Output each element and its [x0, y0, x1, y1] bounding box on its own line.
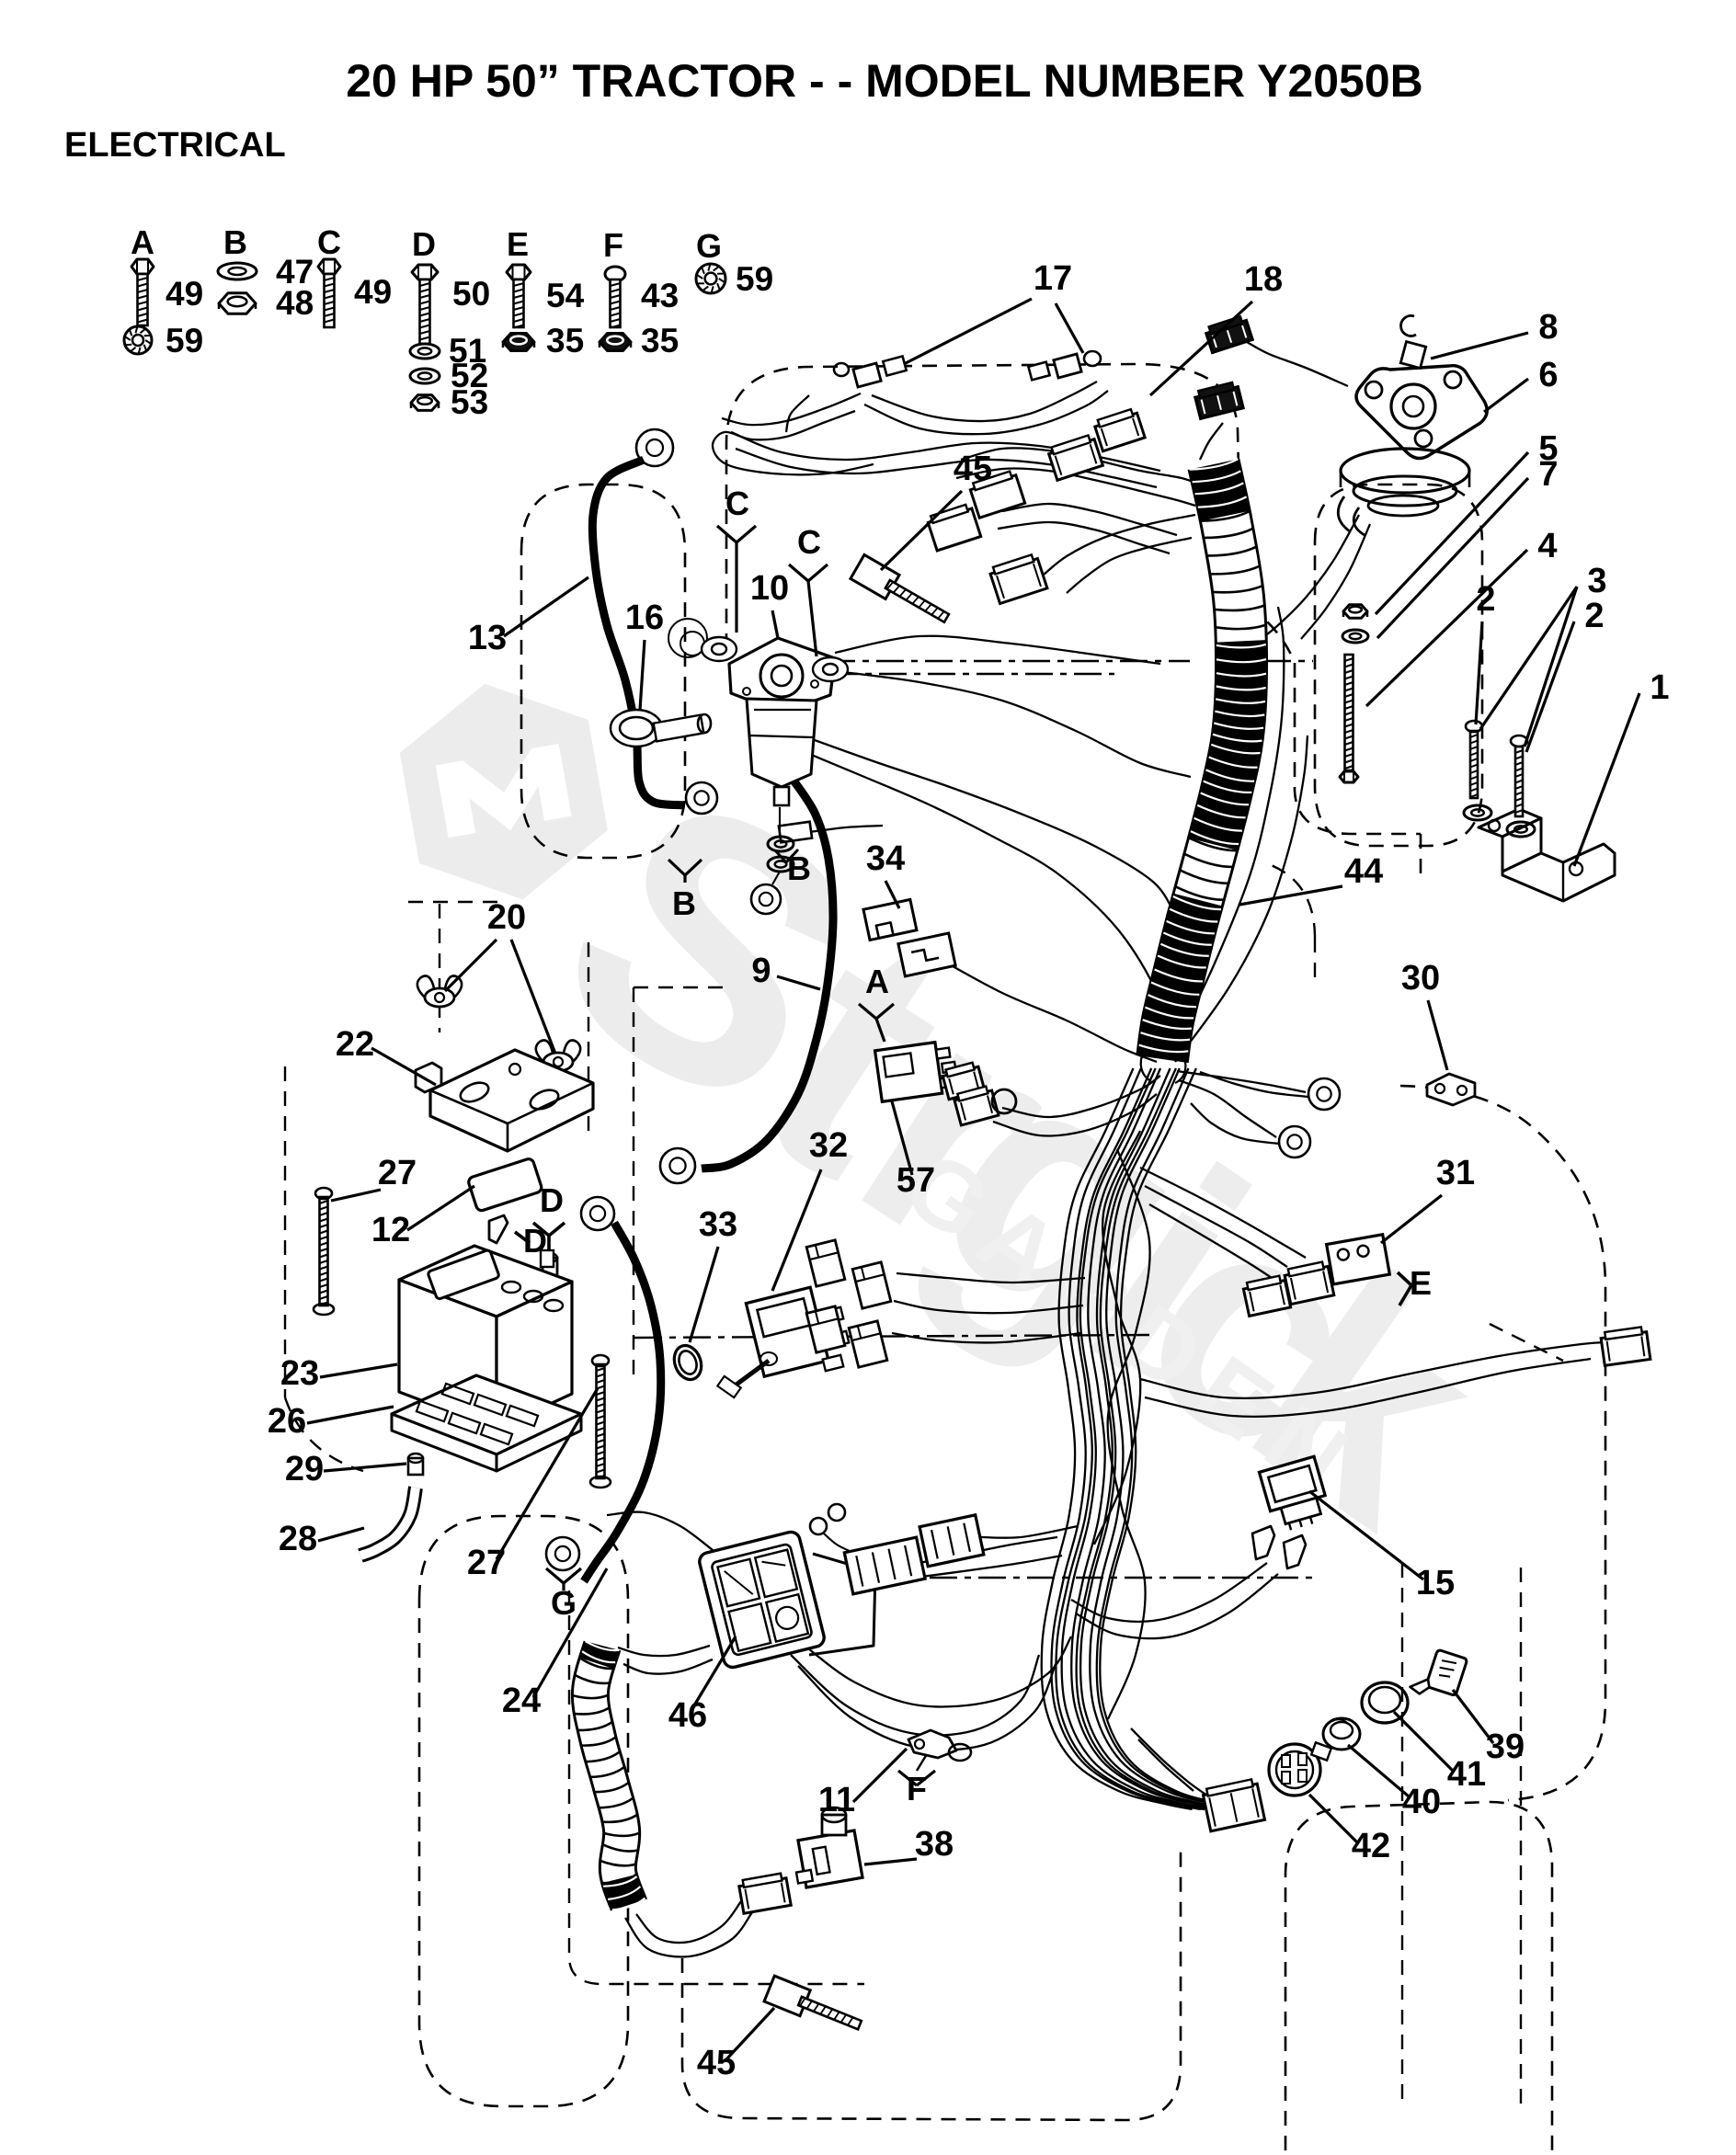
svg-text:35: 35 [546, 322, 584, 359]
svg-text:53: 53 [451, 383, 488, 421]
svg-text:8: 8 [1538, 308, 1558, 347]
svg-text:15: 15 [1416, 1564, 1455, 1602]
svg-text:39: 39 [1486, 1727, 1525, 1766]
svg-text:22: 22 [336, 1025, 374, 1064]
svg-text:6: 6 [1538, 356, 1558, 394]
svg-text:10: 10 [750, 569, 789, 608]
svg-text:E: E [1410, 1264, 1432, 1302]
svg-text:57: 57 [897, 1161, 935, 1200]
svg-text:4: 4 [1537, 527, 1557, 565]
svg-text:38: 38 [915, 1825, 954, 1864]
svg-text:32: 32 [809, 1126, 848, 1165]
svg-text:18: 18 [1244, 260, 1283, 299]
svg-text:30: 30 [1401, 959, 1440, 998]
svg-text:27: 27 [467, 1544, 506, 1582]
svg-text:B: B [223, 223, 247, 261]
svg-text:46: 46 [668, 1696, 707, 1735]
svg-text:24: 24 [502, 1682, 541, 1720]
svg-text:28: 28 [279, 1520, 317, 1558]
svg-text:50: 50 [452, 275, 490, 313]
svg-text:31: 31 [1436, 1154, 1475, 1192]
svg-text:2: 2 [1584, 597, 1604, 635]
svg-text:48: 48 [276, 284, 314, 322]
svg-text:20 HP 50” TRACTOR - - MODEL: 20 HP 50” TRACTOR - - MODEL NUMBER Y2050… [346, 55, 1423, 107]
svg-text:43: 43 [641, 277, 679, 314]
svg-text:A: A [865, 963, 889, 1000]
svg-text:45: 45 [697, 2044, 736, 2082]
svg-text:44: 44 [1344, 852, 1383, 891]
svg-text:29: 29 [285, 1450, 324, 1488]
svg-text:3: 3 [1587, 562, 1606, 600]
svg-text:ELECTRICAL: ELECTRICAL [64, 126, 286, 165]
svg-text:D: D [412, 225, 436, 263]
svg-text:17: 17 [1034, 259, 1072, 298]
svg-text:35: 35 [641, 322, 679, 359]
svg-text:C: C [317, 223, 341, 261]
svg-text:12: 12 [371, 1211, 410, 1249]
svg-text:20: 20 [487, 898, 526, 937]
svg-text:A: A [131, 223, 154, 261]
svg-text:2: 2 [1476, 580, 1495, 619]
svg-text:C: C [797, 523, 821, 561]
svg-text:7: 7 [1538, 455, 1558, 494]
svg-text:27: 27 [378, 1154, 417, 1192]
svg-text:E: E [507, 225, 529, 263]
svg-text:13: 13 [468, 619, 507, 657]
svg-text:41: 41 [1447, 1755, 1486, 1794]
svg-text:23: 23 [280, 1354, 319, 1393]
svg-text:16: 16 [625, 599, 664, 637]
svg-text:C: C [725, 485, 749, 522]
svg-text:40: 40 [1402, 1783, 1441, 1821]
svg-text:D: D [540, 1181, 564, 1219]
svg-text:26: 26 [268, 1402, 306, 1441]
svg-text:45: 45 [954, 450, 992, 488]
svg-text:F: F [907, 1770, 927, 1807]
svg-text:B: B [672, 884, 696, 922]
svg-text:49: 49 [354, 273, 392, 311]
svg-text:G: G [551, 1584, 577, 1622]
svg-text:49: 49 [166, 275, 203, 313]
svg-text:G: G [696, 227, 722, 265]
svg-text:34: 34 [866, 839, 905, 878]
svg-text:9: 9 [751, 952, 771, 990]
svg-text:33: 33 [699, 1205, 737, 1244]
svg-text:42: 42 [1352, 1827, 1390, 1865]
svg-text:11: 11 [818, 1781, 855, 1819]
svg-text:59: 59 [736, 260, 773, 298]
svg-text:59: 59 [166, 322, 203, 359]
svg-text:F: F [603, 226, 623, 264]
svg-text:1: 1 [1650, 668, 1669, 707]
svg-text:54: 54 [546, 277, 585, 314]
svg-text:B: B [787, 849, 811, 887]
